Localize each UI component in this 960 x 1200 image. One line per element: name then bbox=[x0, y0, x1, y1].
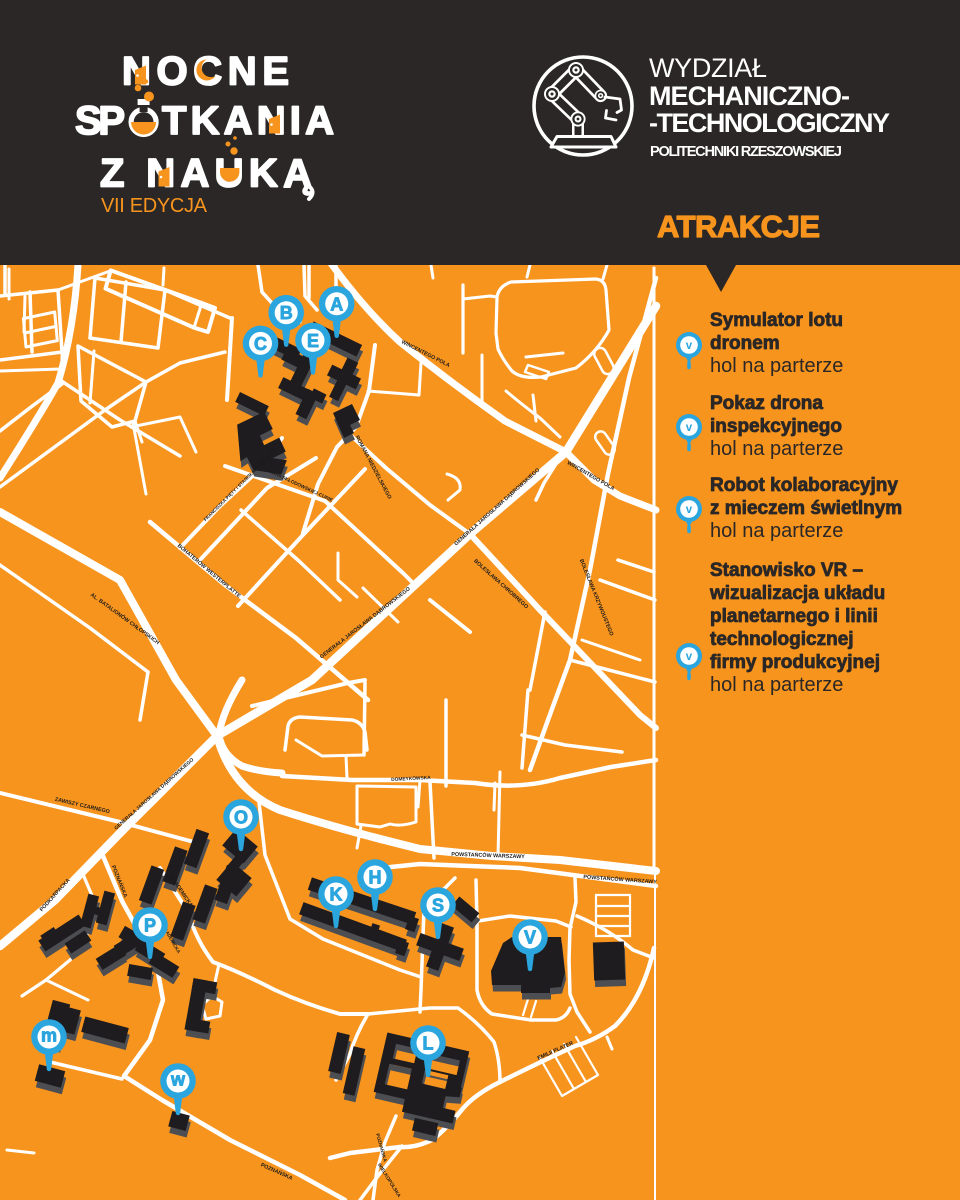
svg-text:B: B bbox=[280, 303, 293, 323]
svg-text:VII EDYCJA: VII EDYCJA bbox=[101, 195, 208, 217]
svg-text:ATRAKCJE: ATRAKCJE bbox=[657, 209, 820, 244]
svg-text:hol na parterze: hol na parterze bbox=[710, 674, 843, 696]
svg-text:v: v bbox=[686, 504, 693, 516]
svg-text:K: K bbox=[330, 885, 343, 905]
svg-text:inspekcyjnego: inspekcyjnego bbox=[710, 416, 842, 437]
svg-text:firmy produkcyjnej: firmy produkcyjnej bbox=[710, 652, 880, 673]
svg-text:wizualizacja układu: wizualizacja układu bbox=[709, 583, 885, 604]
svg-text:dronem: dronem bbox=[710, 333, 780, 354]
svg-text:O: O bbox=[234, 808, 248, 828]
svg-text:m: m bbox=[41, 1026, 57, 1046]
svg-text:P: P bbox=[144, 916, 156, 936]
svg-text:Stanowisko VR –: Stanowisko VR – bbox=[710, 560, 863, 581]
svg-text:MECHANICZNO-: MECHANICZNO- bbox=[649, 81, 850, 111]
svg-text:v: v bbox=[686, 651, 693, 663]
svg-text:technologicznej: technologicznej bbox=[710, 629, 854, 650]
svg-text:v: v bbox=[686, 340, 693, 352]
svg-text:C: C bbox=[254, 334, 267, 354]
svg-text:S: S bbox=[432, 896, 444, 916]
svg-text:hol na parterze: hol na parterze bbox=[710, 438, 843, 460]
svg-text:Symulator lotu: Symulator lotu bbox=[710, 310, 843, 331]
svg-text:E: E bbox=[307, 331, 319, 351]
svg-text:NOCNE: NOCNE bbox=[122, 50, 289, 94]
svg-text:planetarnego i linii: planetarnego i linii bbox=[710, 606, 878, 627]
svg-text:WYDZIAŁ: WYDZIAŁ bbox=[649, 53, 767, 83]
svg-text:v: v bbox=[686, 422, 693, 434]
svg-text:L: L bbox=[423, 1034, 434, 1054]
svg-text:z mieczem świetlnym: z mieczem świetlnym bbox=[710, 498, 902, 519]
svg-text:H: H bbox=[369, 868, 382, 888]
svg-text:w: w bbox=[170, 1070, 186, 1090]
svg-text:V: V bbox=[524, 928, 536, 948]
svg-text:POLITECHNIKI RZESZOWSKIEJ: POLITECHNIKI RZESZOWSKIEJ bbox=[650, 144, 842, 160]
svg-text:-TECHNOLOGICZNY: -TECHNOLOGICZNY bbox=[649, 108, 890, 138]
svg-text:Pokaz drona: Pokaz drona bbox=[710, 393, 823, 414]
svg-text:hol na parterze: hol na parterze bbox=[710, 355, 843, 377]
svg-text:hol na parterze: hol na parterze bbox=[710, 520, 843, 542]
svg-text:SP: SP bbox=[75, 99, 125, 143]
svg-text:Robot kolaboracyjny: Robot kolaboracyjny bbox=[710, 475, 898, 496]
svg-text:A: A bbox=[330, 294, 343, 314]
